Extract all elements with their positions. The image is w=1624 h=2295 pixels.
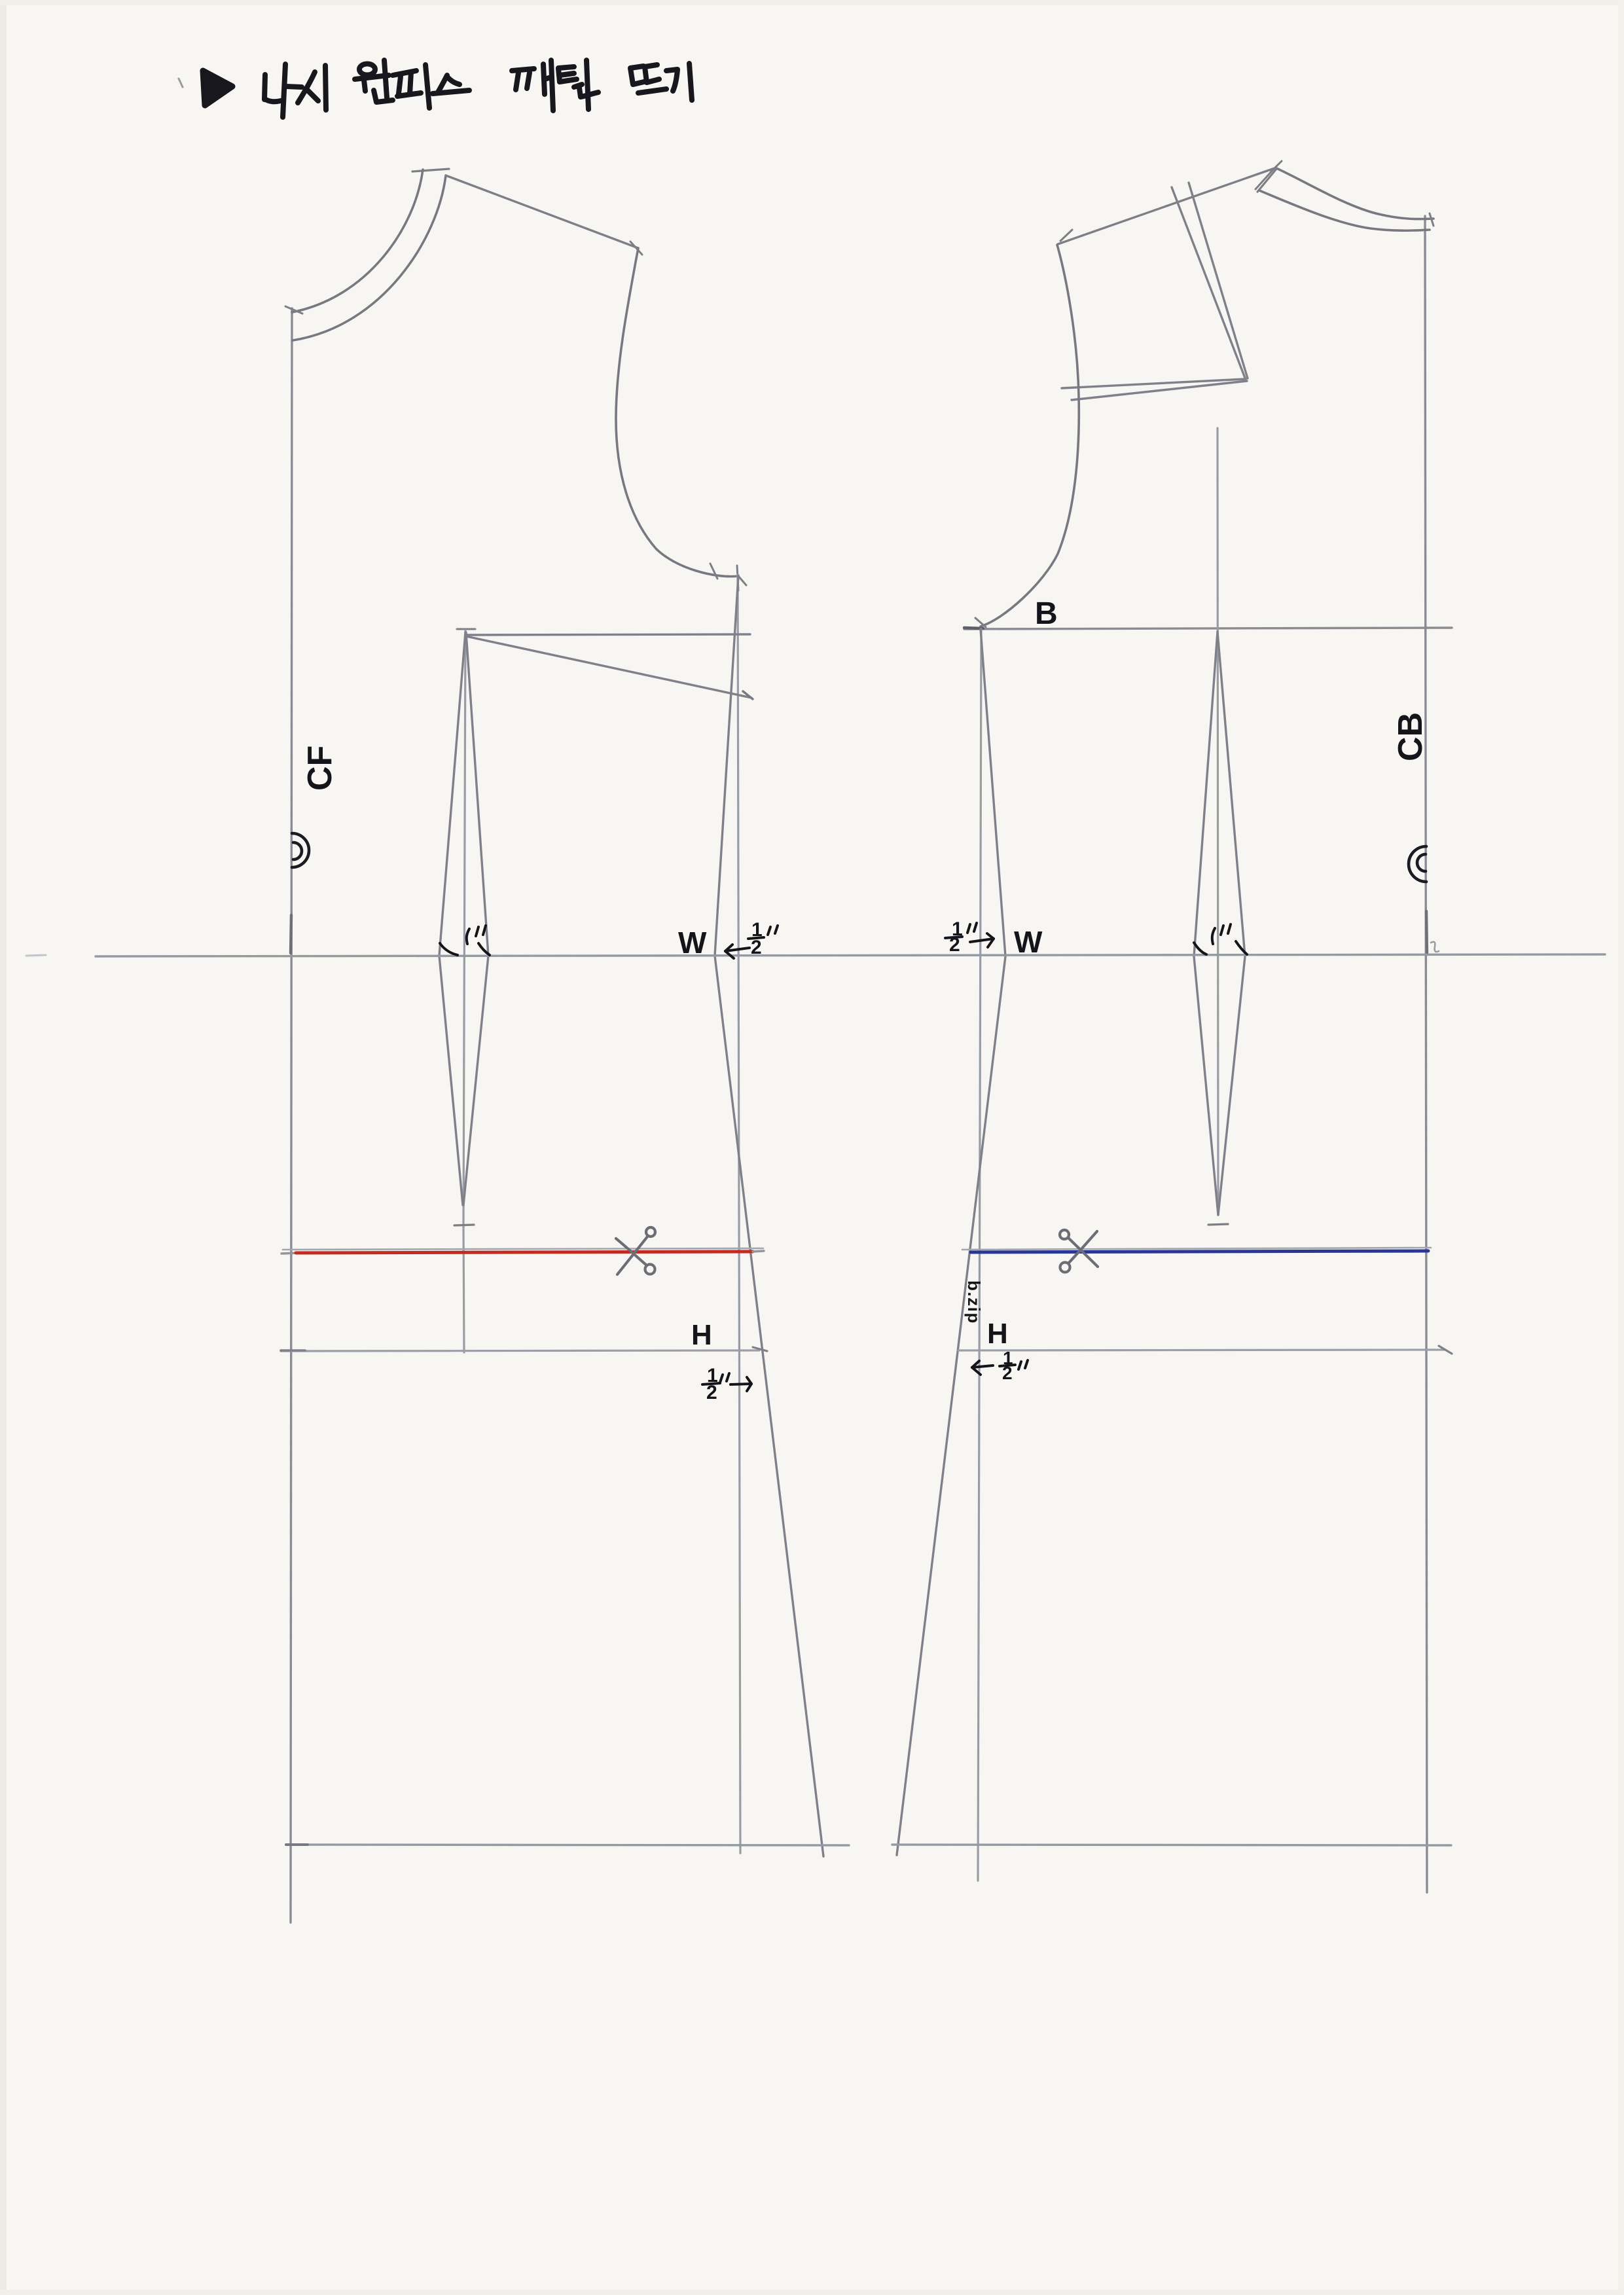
svg-text:H: H: [987, 1318, 1008, 1350]
svg-text:CF: CF: [301, 746, 339, 791]
svg-text:b.zip: b.zip: [964, 1280, 984, 1324]
svg-text:W: W: [678, 926, 707, 960]
svg-text:B: B: [1035, 596, 1058, 631]
svg-text:CB: CB: [1392, 712, 1430, 761]
svg-text:W: W: [1014, 925, 1043, 959]
svg-text:H: H: [691, 1319, 712, 1351]
svg-text:2: 2: [949, 934, 960, 956]
svg-text:2: 2: [751, 937, 762, 958]
svg-text:2: 2: [1002, 1363, 1013, 1383]
svg-text:2: 2: [706, 1382, 717, 1403]
